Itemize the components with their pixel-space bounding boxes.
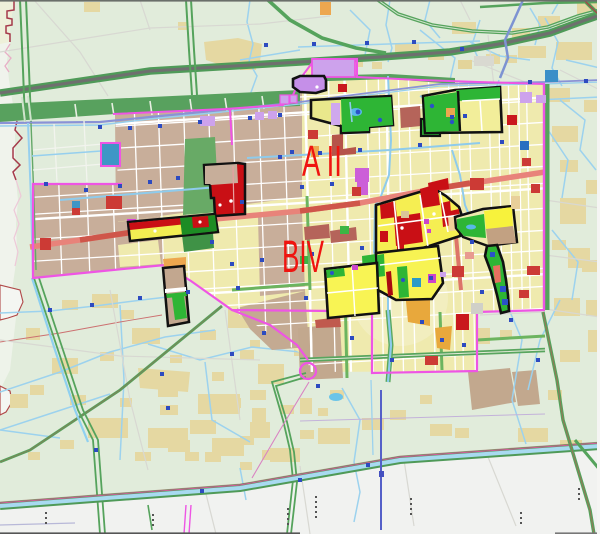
svg-text:BIV: BIV — [282, 231, 324, 282]
svg-text:A II: A II — [302, 137, 342, 186]
